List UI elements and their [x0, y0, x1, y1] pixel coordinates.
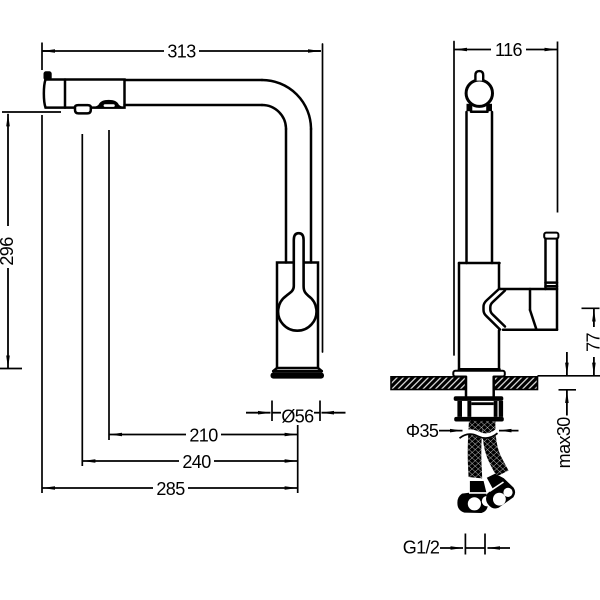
- svg-text:77: 77: [583, 333, 600, 352]
- svg-text:G1/2: G1/2: [403, 538, 440, 558]
- svg-text:Φ35: Φ35: [406, 421, 439, 441]
- svg-text:Ø56: Ø56: [281, 407, 314, 427]
- svg-text:313: 313: [167, 41, 196, 61]
- svg-text:240: 240: [182, 452, 211, 472]
- svg-text:116: 116: [495, 40, 522, 60]
- svg-text:285: 285: [156, 479, 185, 499]
- svg-text:210: 210: [189, 426, 218, 446]
- svg-text:max30: max30: [554, 417, 574, 469]
- svg-text:296: 296: [0, 237, 17, 266]
